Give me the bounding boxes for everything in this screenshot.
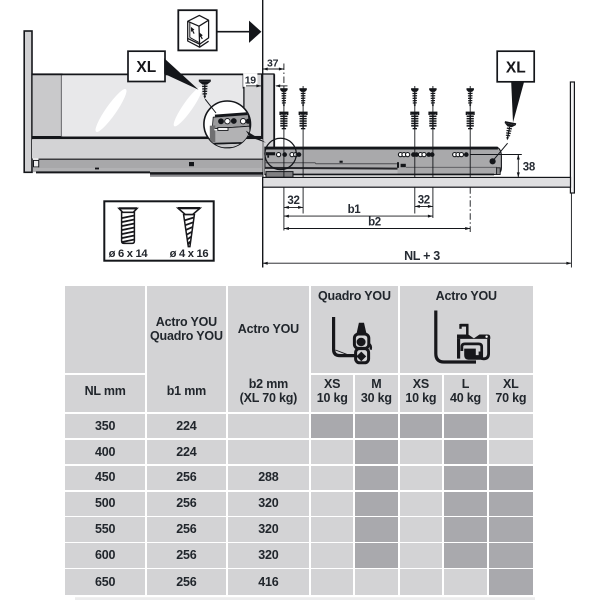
svg-text:b1: b1 bbox=[348, 204, 362, 216]
svg-text:ø 6 x 14: ø 6 x 14 bbox=[109, 248, 149, 260]
svg-text:NL + 3: NL + 3 bbox=[404, 249, 440, 263]
svg-text:37: 37 bbox=[267, 58, 279, 70]
svg-text:19: 19 bbox=[245, 75, 257, 87]
svg-text:XL: XL bbox=[136, 59, 156, 76]
svg-text:32: 32 bbox=[287, 195, 299, 207]
svg-text:ø 4 x 16: ø 4 x 16 bbox=[170, 248, 209, 260]
svg-text:b2: b2 bbox=[368, 217, 381, 229]
svg-text:38: 38 bbox=[523, 162, 536, 174]
svg-text:XL: XL bbox=[506, 60, 526, 77]
svg-text:32: 32 bbox=[418, 194, 430, 206]
